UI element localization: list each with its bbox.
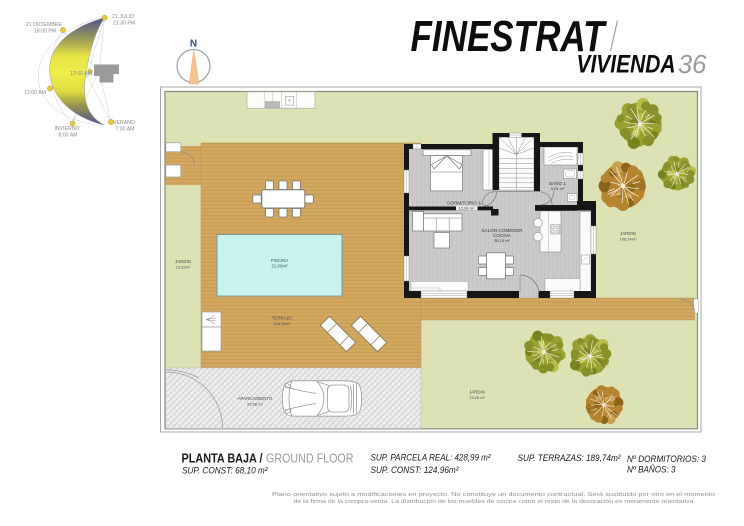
svg-text:Plano orientativo sujeto a mod: Plano orientativo sujeto a modificacione… <box>272 492 715 498</box>
svg-text:12:00 AM: 12:00 AM <box>24 90 46 96</box>
svg-text:24,58 m²: 24,58 m² <box>247 401 263 406</box>
svg-text:13,62m²: 13,62m² <box>176 264 191 269</box>
svg-text:8:00 AM: 8:00 AM <box>58 133 77 139</box>
svg-text:12:00 AM: 12:00 AM <box>70 71 92 77</box>
svg-text:JARDIN: JARDIN <box>620 231 636 236</box>
svg-text:5,24 m²: 5,24 m² <box>551 186 565 191</box>
svg-text:VERANO: VERANO <box>113 120 135 126</box>
svg-text:Nº DORMITORIOS: 3: Nº DORMITORIOS: 3 <box>627 454 706 464</box>
svg-text:73,25 m²: 73,25 m² <box>469 395 485 400</box>
svg-text:7:00 AM: 7:00 AM <box>115 127 134 133</box>
svg-text:38,15 m²: 38,15 m² <box>494 238 510 243</box>
svg-text:21 DICIEMBRE: 21 DICIEMBRE <box>26 22 63 28</box>
svg-text:SUP. TERRAZAS: 189,74m²: SUP. TERRAZAS: 189,74m² <box>518 453 622 463</box>
svg-text:GROUND FLOOR: GROUND FLOOR <box>266 451 354 466</box>
svg-text:VIVIENDA: VIVIENDA <box>577 51 676 79</box>
svg-text:DORMITORIO 1: DORMITORIO 1 <box>447 200 481 205</box>
svg-text:TERRAZA: TERRAZA <box>272 316 293 321</box>
svg-text:N: N <box>190 39 197 50</box>
svg-text:36: 36 <box>678 51 707 79</box>
svg-text:21,00m²: 21,00m² <box>271 264 288 269</box>
svg-text:SUP. CONST: 124,96m²: SUP. CONST: 124,96m² <box>371 465 460 475</box>
svg-text:21:30 PM: 21:30 PM <box>113 21 135 27</box>
svg-text:de la firma de la compra-venta: de la firma de la compra-venta. La distr… <box>294 499 695 505</box>
svg-text:APARCAMIENTO: APARCAMIENTO <box>238 396 273 401</box>
svg-text:12,08 m²: 12,08 m² <box>459 206 475 211</box>
svg-text:INVIERNO: INVIERNO <box>54 126 79 132</box>
svg-text:JARDIN: JARDIN <box>469 390 485 395</box>
svg-text:SUP. CONST: 68,10 m²: SUP. CONST: 68,10 m² <box>182 466 268 476</box>
svg-text:100,24m²: 100,24m² <box>620 236 638 241</box>
svg-text:Nº BAÑOS: 3: Nº BAÑOS: 3 <box>627 465 676 475</box>
svg-text:21 JULIO: 21 JULIO <box>112 14 134 20</box>
svg-text:PLANTA BAJA /: PLANTA BAJA / <box>182 451 263 466</box>
svg-text:18:00 PM: 18:00 PM <box>34 29 56 35</box>
svg-text:JARDIN: JARDIN <box>175 259 191 264</box>
svg-text:PISCINA: PISCINA <box>271 258 289 263</box>
svg-text:126,56m²: 126,56m² <box>274 321 292 326</box>
svg-text:SUP. PARCELA REAL: 428,99 m²: SUP. PARCELA REAL: 428,99 m² <box>371 452 492 462</box>
